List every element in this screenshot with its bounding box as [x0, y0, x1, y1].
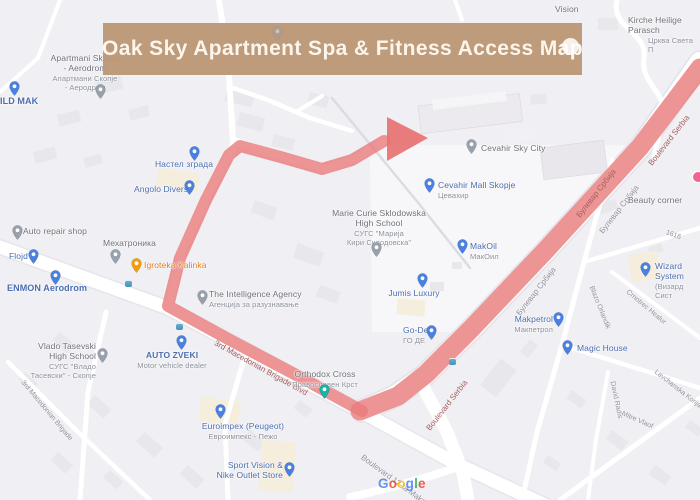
map-pin-icon[interactable]	[371, 242, 382, 257]
poi-label-euroimpex[interactable]: Euroimpex (Peugeot)Евроимпекс - Пежо	[202, 421, 284, 441]
map-pin-icon[interactable]	[28, 249, 39, 264]
map-pin-icon[interactable]	[12, 225, 23, 240]
poi-label-go-de[interactable]: Go-DeГО ДЕ	[403, 325, 429, 345]
google-logo: Google	[378, 476, 426, 491]
transit-stop-icon[interactable]	[176, 323, 183, 330]
poi-label-sport-vision[interactable]: Sport Vision & Nike Outlet Store	[217, 460, 283, 480]
map-pin-icon[interactable]	[9, 81, 20, 96]
map-pin-icon[interactable]	[189, 146, 200, 161]
poi-label-jumis-luxury[interactable]: Jumis Luxury	[388, 288, 439, 298]
pink-poi-icon[interactable]	[692, 171, 700, 183]
map-pin-icon[interactable]	[95, 84, 106, 99]
poi-label-auto-repair[interactable]: Auto repair shop	[23, 226, 87, 236]
map-pin-icon[interactable]	[197, 290, 208, 305]
poi-label-vlado-tasevski[interactable]: Vlado Tasevski High SchoolСУГС "Владо Та…	[31, 341, 96, 380]
map-pin-icon[interactable]	[319, 384, 330, 399]
google-letter: e	[418, 476, 426, 491]
poi-label-build-mak[interactable]: ILD MAK	[0, 96, 38, 107]
poi-label-magic-house[interactable]: Magic House	[577, 343, 628, 353]
map-pin-icon[interactable]	[424, 178, 435, 193]
poi-label-cevahir-mall[interactable]: Cevahir Mall SkopjeЦевахир	[438, 180, 516, 200]
google-letter: G	[378, 476, 389, 491]
poi-label-kirche[interactable]: Kirche Heilige ParaschЦрква Света П	[628, 15, 700, 54]
poi-label-auto-zveki[interactable]: AUTO ZVEKIMotor vehicle dealer	[137, 350, 207, 370]
map-pin-icon[interactable]	[176, 335, 187, 350]
ghost-pin-icon	[272, 26, 283, 41]
map-pin-icon[interactable]	[417, 273, 428, 288]
map-pin-icon[interactable]	[110, 249, 121, 264]
transit-stop-icon[interactable]	[125, 280, 132, 287]
map-title-banner: Oak Sky Apartment Spa & Fitness Access M…	[103, 23, 582, 75]
poi-label-vision[interactable]: Vision	[555, 4, 579, 14]
poi-label-beauty-corner[interactable]: Beauty corner	[628, 195, 682, 205]
poi-label-mehatronika[interactable]: Мехатроника	[103, 238, 156, 248]
map-canvas[interactable]: 3rd Macedonian Brigade Blvd Boulevard Se…	[0, 0, 700, 500]
poi-label-makpetrol[interactable]: MakpetrolМакпетрол	[514, 314, 553, 334]
poi-label-wizard-system[interactable]: Wizard System(Визард Сист	[655, 261, 700, 300]
transit-stop-icon[interactable]	[449, 358, 456, 365]
map-pin-icon[interactable]	[50, 270, 61, 285]
poi-label-intelligence-agency[interactable]: The Intelligence AgencyАгенција за разуз…	[209, 289, 302, 309]
ghost-circle	[562, 38, 579, 55]
map-pin-icon[interactable]	[562, 340, 573, 355]
map-pin-icon[interactable]	[426, 325, 437, 340]
map-pin-icon[interactable]	[466, 139, 477, 154]
poi-label-cevahir-sky-city[interactable]: Cevahir Sky City	[481, 143, 545, 153]
map-pin-icon[interactable]	[184, 180, 195, 195]
map-pin-icon[interactable]	[457, 239, 468, 254]
poi-label-enmon[interactable]: ENMON Aerodrom	[7, 283, 87, 294]
map-title: Oak Sky Apartment Spa & Fitness Access M…	[102, 37, 583, 61]
poi-label-makoil[interactable]: MakOilМакОил	[470, 241, 499, 261]
google-letter: o	[389, 476, 397, 491]
map-pin-icon[interactable]	[97, 348, 108, 363]
map-pin-icon[interactable]	[640, 262, 651, 277]
google-letter: o	[397, 476, 405, 491]
poi-label-igroteka[interactable]: Igroteka Kalinka	[144, 260, 207, 270]
map-pin-icon[interactable]	[131, 258, 142, 273]
map-pin-icon[interactable]	[215, 404, 226, 419]
poi-label-nastel[interactable]: Настел зграда	[155, 159, 213, 169]
poi-label-flojd[interactable]: Flojd	[9, 251, 28, 261]
map-pin-icon[interactable]	[284, 462, 295, 477]
map-pin-icon[interactable]	[553, 312, 564, 327]
google-letter: g	[406, 476, 414, 491]
